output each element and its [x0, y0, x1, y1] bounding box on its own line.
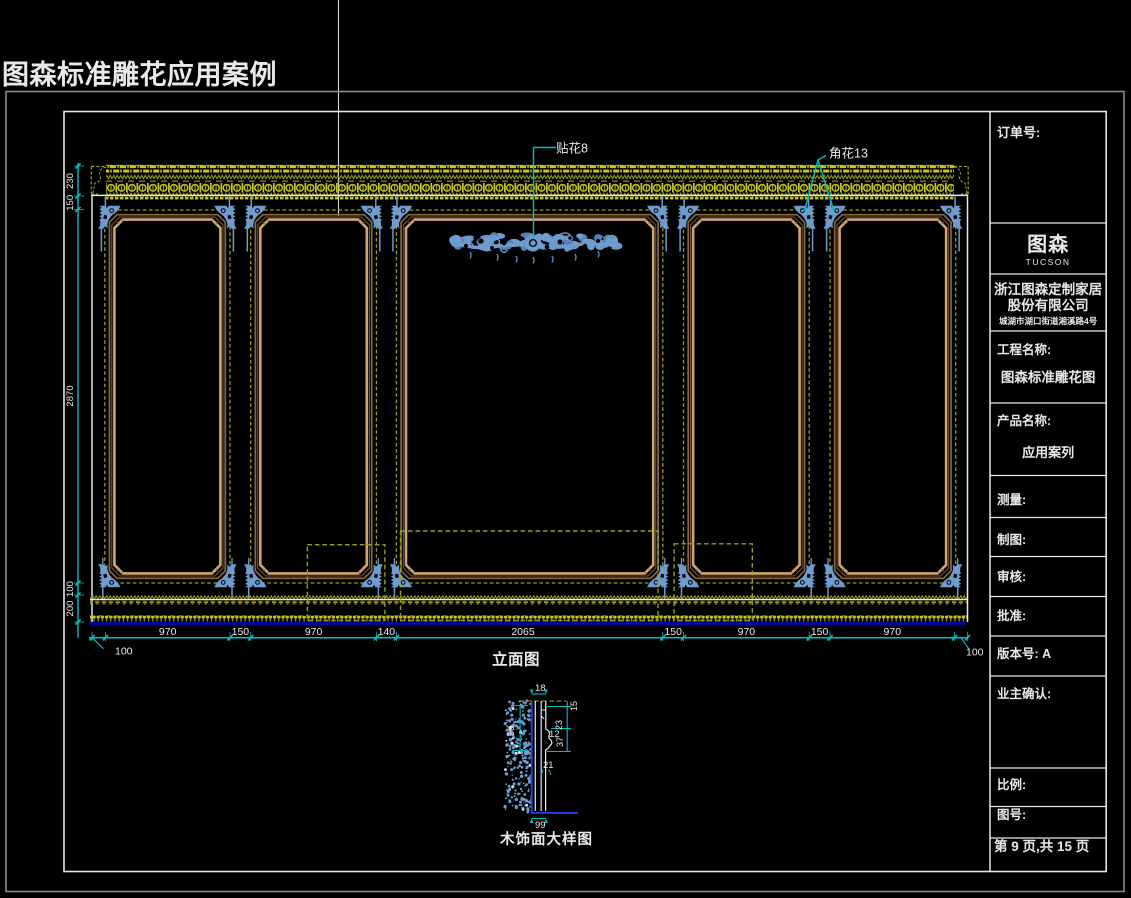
svg-text:12: 12 [549, 729, 560, 740]
svg-text:2870: 2870 [65, 385, 76, 406]
svg-text:50: 50 [506, 726, 517, 737]
svg-text:100: 100 [65, 581, 76, 597]
svg-text:立面图: 立面图 [492, 650, 540, 669]
svg-text:99: 99 [535, 820, 546, 831]
svg-text:浙江图森定制家居: 浙江图森定制家居 [994, 281, 1102, 297]
svg-text:100: 100 [966, 647, 984, 659]
svg-text:21: 21 [543, 760, 554, 771]
svg-text:图森标准雕花图: 图森标准雕花图 [1001, 369, 1096, 385]
svg-text:140: 140 [378, 626, 396, 638]
svg-text:150: 150 [664, 626, 682, 638]
svg-text:贴花8: 贴花8 [556, 141, 588, 156]
svg-text:木饰面大样图: 木饰面大样图 [499, 830, 593, 848]
svg-text:制图:: 制图: [997, 532, 1026, 547]
svg-text:图森: 图森 [1027, 232, 1069, 256]
svg-text:15: 15 [569, 701, 579, 711]
svg-text:970: 970 [884, 626, 902, 638]
svg-text:比例:: 比例: [997, 777, 1026, 792]
svg-text:版本号: A: 版本号: A [997, 646, 1051, 661]
svg-text:股份有限公司: 股份有限公司 [1008, 297, 1089, 313]
svg-text:第 9 页,共 15 页: 第 9 页,共 15 页 [994, 838, 1089, 854]
svg-text:图号:: 图号: [997, 807, 1026, 822]
svg-text:2065: 2065 [511, 626, 535, 638]
svg-text:角花13: 角花13 [829, 146, 868, 161]
svg-text:工程名称:: 工程名称: [997, 342, 1051, 357]
svg-text:TUCSON: TUCSON [1026, 257, 1071, 267]
svg-text:18: 18 [535, 683, 546, 694]
svg-text:测量:: 测量: [997, 492, 1026, 507]
svg-text:应用案列: 应用案列 [1022, 445, 1074, 460]
svg-text:200: 200 [65, 601, 76, 617]
svg-text:审核:: 审核: [997, 569, 1026, 584]
svg-text:100: 100 [115, 646, 133, 658]
svg-text:业主确认:: 业主确认: [997, 686, 1051, 701]
svg-text:970: 970 [159, 626, 177, 638]
svg-text:970: 970 [738, 626, 756, 638]
svg-text:970: 970 [305, 626, 323, 638]
svg-text:150: 150 [65, 195, 76, 211]
svg-text:150: 150 [232, 626, 250, 638]
svg-text:订单号:: 订单号: [997, 125, 1040, 140]
svg-text:图森标准雕花应用案例: 图森标准雕花应用案例 [2, 59, 277, 90]
svg-text:产品名称:: 产品名称: [997, 413, 1051, 428]
svg-text:城湖市湖口街道湘溪路4号: 城湖市湖口街道湘溪路4号 [999, 316, 1098, 326]
svg-text:230: 230 [65, 173, 76, 189]
svg-text:150: 150 [811, 626, 829, 638]
svg-text:批准:: 批准: [997, 608, 1026, 623]
